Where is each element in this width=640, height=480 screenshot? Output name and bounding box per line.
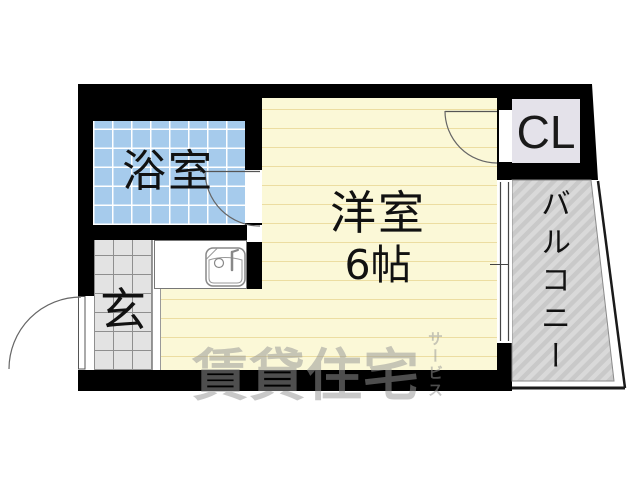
kitchen-counter xyxy=(154,240,247,289)
bathroom-label: 浴室 xyxy=(122,150,214,194)
balcony-window-opening xyxy=(497,180,512,343)
main-room-name: 洋室 xyxy=(330,190,426,236)
entrance-label: 玄 xyxy=(100,287,146,333)
main-room-label: 洋室 6帖 xyxy=(330,190,426,286)
floorplan-canvas: 浴室 玄 洋室 6帖 CL バルコニー 賃貸住宅 サービス xyxy=(0,0,640,480)
entrance-door-swing-icon xyxy=(9,297,85,370)
main-room-size: 6帖 xyxy=(330,245,426,286)
bathroom-door-opening xyxy=(245,170,262,223)
watermark-text: 賃貸住宅 xyxy=(192,331,420,412)
entrance-door-opening xyxy=(78,296,94,370)
wall-gap xyxy=(247,225,262,242)
balcony-outer-rail-right xyxy=(598,181,625,388)
watermark-subtext: サービス xyxy=(425,331,446,399)
balcony-label: バルコニー xyxy=(537,188,567,378)
closet-label: CL xyxy=(517,109,576,155)
closet-door-opening xyxy=(499,110,512,162)
